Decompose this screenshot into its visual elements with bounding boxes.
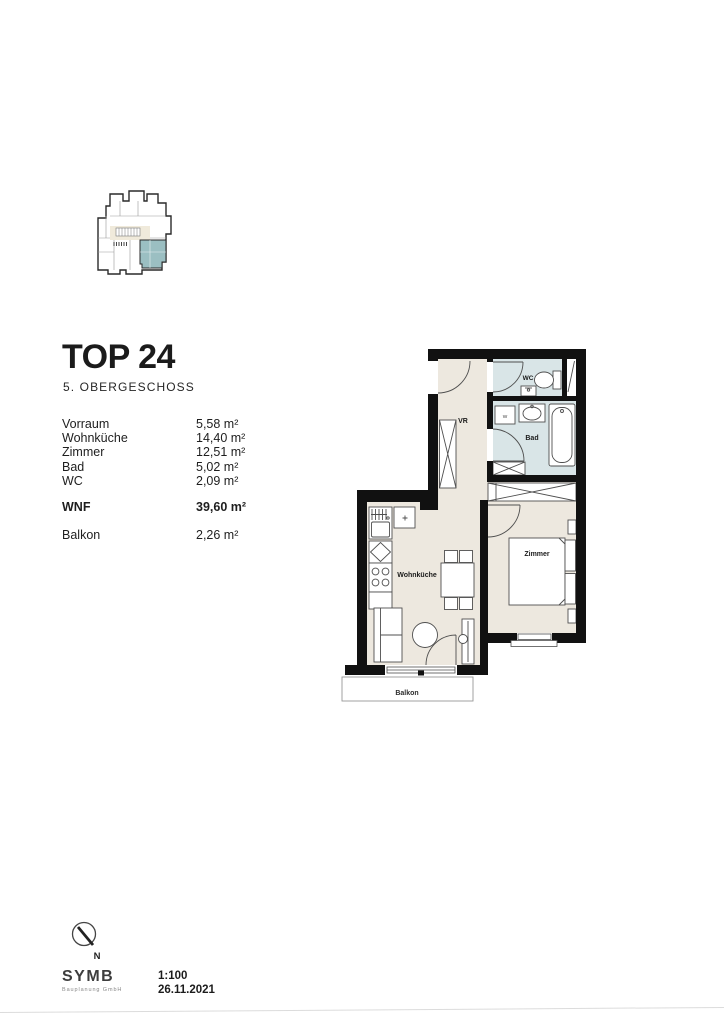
- company-logo: SYMB Bauplanung GmbH: [62, 968, 122, 993]
- page-subtitle: 5. OBERGESCHOSS: [63, 380, 195, 394]
- bad-cabinet: [493, 462, 525, 475]
- toilet: [535, 371, 562, 389]
- room-area: 12,51 m²: [196, 445, 245, 459]
- north-label: N: [94, 951, 101, 962]
- balcony-label: Balkon: [62, 528, 196, 542]
- label-bad: Bad: [525, 435, 538, 442]
- key-plan-highlighted-unit: [140, 240, 166, 268]
- nightstand: [568, 520, 576, 534]
- balcony-outline: [342, 677, 473, 701]
- floorplan-sheet: { "page": { "title": "TOP 24", "subtitle…: [0, 0, 724, 1024]
- area-balcony-row: Balkon 2,26 m²: [62, 528, 272, 542]
- area-row: Bad 5,02 m²: [62, 460, 272, 474]
- area-row: Wohnküche 14,40 m²: [62, 431, 272, 445]
- label-washer: W: [503, 414, 508, 420]
- room-label: Wohnküche: [62, 431, 196, 445]
- room-label: WC: [62, 474, 196, 488]
- kitchen-counter: [369, 592, 392, 609]
- floor-plan: VR WC Bad W Zimmer Wohnküche Balkon: [335, 330, 615, 710]
- area-row: Zimmer 12,51 m²: [62, 445, 272, 459]
- zimmer-window: [518, 634, 551, 640]
- north-needle: [78, 927, 93, 945]
- bathtub: [549, 404, 575, 466]
- bad-sink: [519, 404, 545, 422]
- room-label: Zimmer: [62, 445, 196, 459]
- kitchen-sink-unit: [369, 507, 392, 539]
- page-title: TOP 24: [62, 338, 175, 377]
- area-row: WC 2,09 m²: [62, 474, 272, 488]
- vr-wardrobe: [440, 420, 457, 488]
- nightstand: [568, 609, 576, 623]
- key-plan: [80, 188, 180, 280]
- room-area: 5,02 m²: [196, 460, 238, 474]
- kitchen-basin-unit: [369, 541, 392, 563]
- footer-divider: [0, 1007, 724, 1013]
- room-label: Bad: [62, 460, 196, 474]
- wc-basin: [521, 386, 536, 396]
- cooktop: [369, 563, 392, 592]
- room-area: 14,40 m²: [196, 431, 245, 445]
- label-wohnkueche: Wohnküche: [397, 572, 437, 579]
- label-wc: WC: [523, 375, 534, 382]
- round-table: [413, 623, 438, 648]
- room-area: 5,58 m²: [196, 417, 238, 431]
- hall-wardrobe: [488, 483, 576, 501]
- label-zimmer: Zimmer: [524, 551, 550, 558]
- label-vr: VR: [458, 418, 468, 425]
- sofa: [374, 608, 402, 662]
- label-balkon: Balkon: [395, 690, 418, 697]
- total-label: WNF: [62, 500, 196, 514]
- north-arrow: N: [62, 914, 118, 966]
- room-area: 2,09 m²: [196, 474, 238, 488]
- shaft-diagonal: [568, 361, 575, 392]
- total-area: 39,60 m²: [196, 500, 246, 514]
- area-total-row: WNF 39,60 m²: [62, 500, 272, 514]
- balcony-area: 2,26 m²: [196, 528, 238, 542]
- area-table: Vorraum 5,58 m² Wohnküche 14,40 m² Zimme…: [62, 417, 272, 542]
- room-label: Vorraum: [62, 417, 196, 431]
- plan-scale: 1:100: [158, 969, 215, 983]
- scale-date-block: 1:100 26.11.2021: [158, 969, 215, 997]
- logo-name: SYMB: [62, 968, 122, 986]
- logo-tagline: Bauplanung GmbH: [62, 987, 122, 993]
- area-row: Vorraum 5,58 m²: [62, 417, 272, 431]
- dining-set: [441, 551, 474, 610]
- plan-date: 26.11.2021: [158, 983, 215, 997]
- kitchen-appliance: [394, 507, 415, 528]
